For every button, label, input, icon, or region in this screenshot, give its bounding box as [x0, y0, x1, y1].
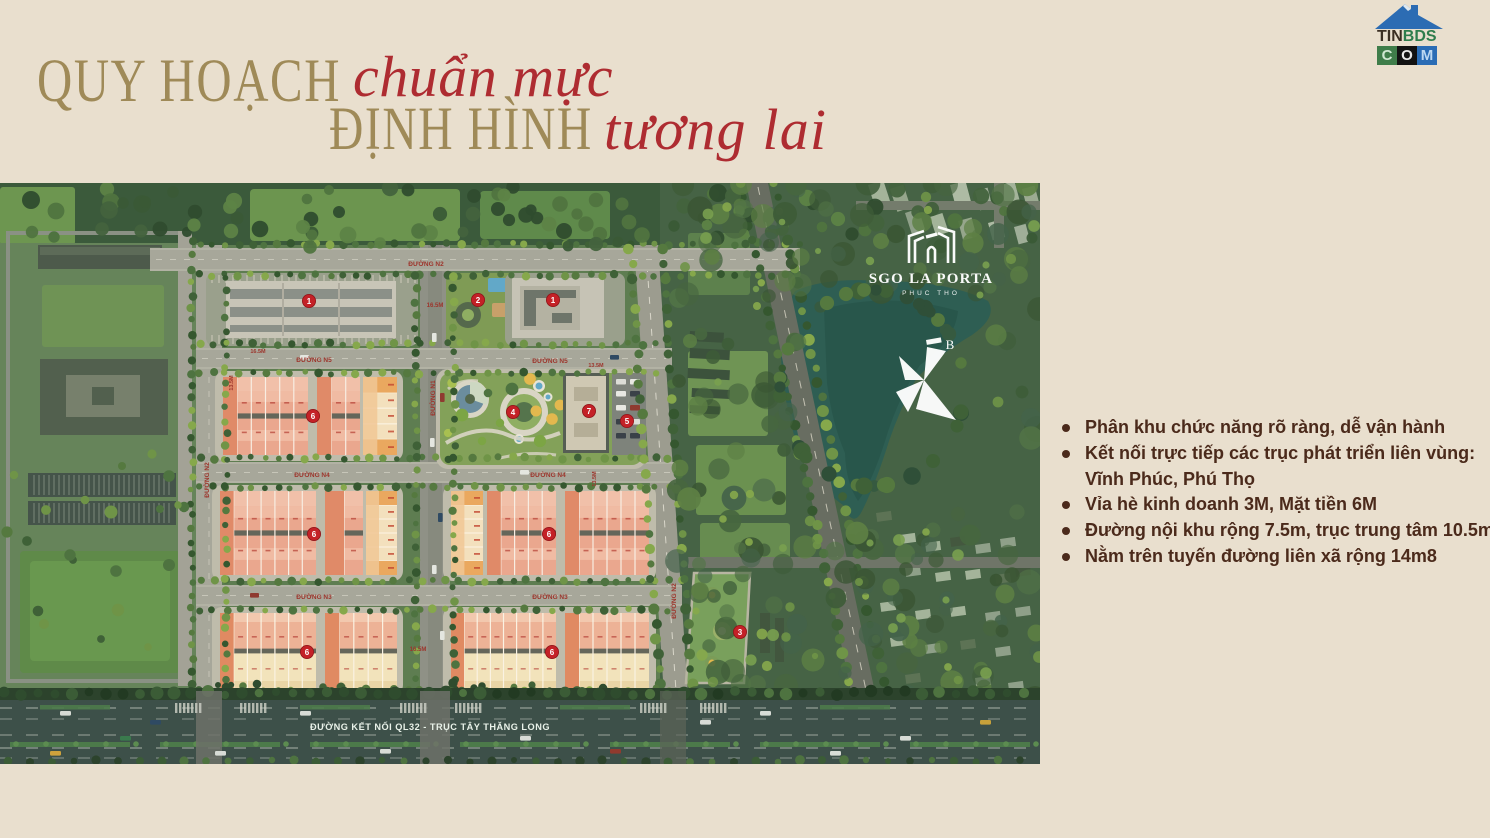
svg-text:6: 6 [547, 530, 552, 539]
svg-text:16.5M: 16.5M [427, 303, 444, 309]
svg-text:ĐƯỜNG N3: ĐƯỜNG N3 [296, 592, 332, 601]
svg-text:ĐƯỜNG N4: ĐƯỜNG N4 [530, 470, 566, 479]
svg-text:ĐƯỜNG N5: ĐƯỜNG N5 [532, 356, 568, 365]
svg-text:1: 1 [307, 297, 312, 306]
svg-text:13.5M: 13.5M [229, 375, 235, 391]
svg-text:13.5M: 13.5M [592, 471, 598, 487]
svg-text:2: 2 [476, 296, 481, 305]
svg-text:6: 6 [550, 648, 555, 657]
svg-text:PHUC THO: PHUC THO [902, 290, 960, 297]
svg-text:ĐƯỜNG N4: ĐƯỜNG N4 [294, 470, 330, 479]
svg-text:B: B [946, 337, 955, 352]
svg-text:ĐƯỜNG N3: ĐƯỜNG N3 [532, 592, 568, 601]
svg-text:ĐƯỜNG N2: ĐƯỜNG N2 [669, 583, 678, 619]
svg-text:4: 4 [511, 408, 516, 417]
svg-text:ĐƯỜNG N1: ĐƯỜNG N1 [428, 380, 437, 416]
svg-text:13.5M: 13.5M [588, 363, 604, 369]
svg-text:ĐƯỜNG N2: ĐƯỜNG N2 [408, 259, 444, 268]
svg-text:16.5M: 16.5M [410, 647, 427, 653]
svg-text:SGO LA PORTA: SGO LA PORTA [869, 271, 993, 287]
svg-text:5: 5 [625, 417, 630, 426]
svg-text:ĐƯỜNG N2: ĐƯỜNG N2 [202, 462, 211, 498]
svg-text:6: 6 [312, 530, 317, 539]
svg-text:1: 1 [551, 296, 556, 305]
svg-text:7: 7 [587, 407, 592, 416]
svg-text:3: 3 [738, 628, 743, 637]
svg-text:ĐƯỜNG N5: ĐƯỜNG N5 [296, 355, 332, 364]
svg-text:16.5M: 16.5M [250, 349, 266, 355]
svg-text:ĐƯỜNG KẾT NỐI QL32 - TRỤC TÂY: ĐƯỜNG KẾT NỐI QL32 - TRỤC TÂY THĂNG LONG [310, 721, 550, 732]
svg-text:6: 6 [305, 648, 310, 657]
svg-text:6: 6 [311, 412, 316, 421]
